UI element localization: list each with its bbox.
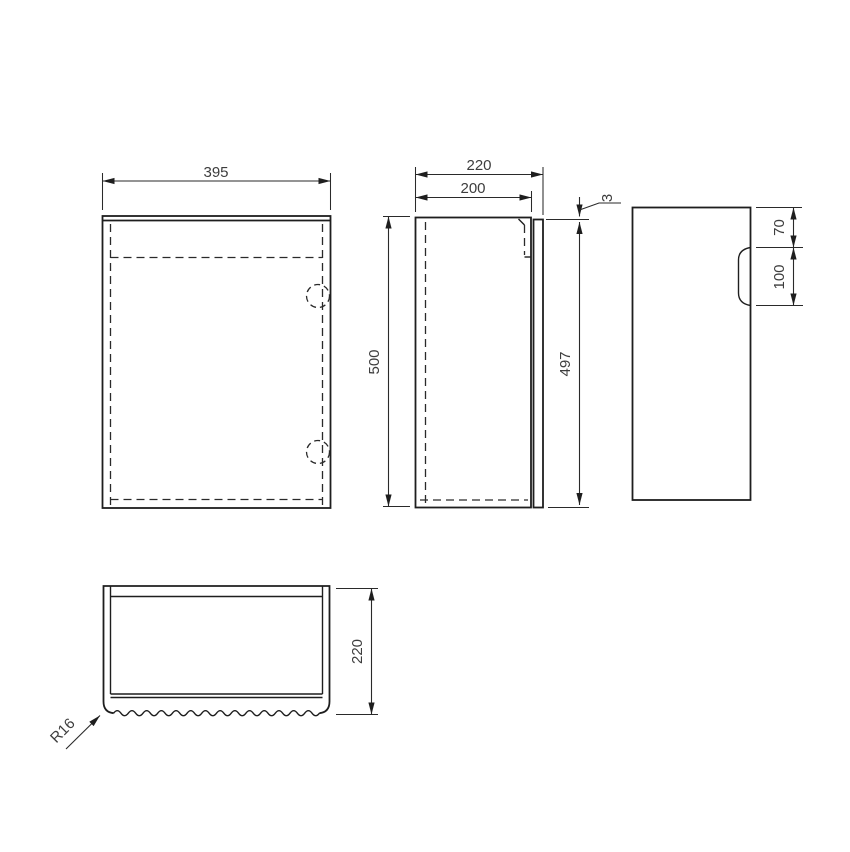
dim-label-500: 500 bbox=[366, 349, 383, 374]
front-hinge-hole-top bbox=[307, 285, 330, 308]
dim-label-497: 497 bbox=[557, 351, 574, 376]
technical-drawing-page: 395 220 200 500 bbox=[0, 0, 850, 852]
dimension-gap-3: 3 bbox=[580, 194, 622, 217]
side-rail-chamfer bbox=[519, 219, 525, 225]
dimension-handle-offset-70: 70 bbox=[756, 208, 803, 248]
profile-handle-recess bbox=[739, 248, 751, 306]
front-hinge-hole-bottom bbox=[307, 441, 330, 464]
dim-label-100: 100 bbox=[771, 264, 788, 289]
dim-label-395: 395 bbox=[203, 164, 228, 181]
profile-outline bbox=[633, 208, 751, 501]
side-door-slab bbox=[534, 220, 544, 508]
cabinet-orthographic-drawing: 395 220 200 500 bbox=[0, 0, 850, 852]
dimension-handle-height-100: 100 bbox=[756, 248, 803, 306]
side-carcass-outline bbox=[416, 218, 532, 508]
dimension-carcass-200: 200 bbox=[416, 180, 532, 212]
front-view: 395 bbox=[103, 164, 331, 508]
side-profile-view: 70 100 bbox=[633, 208, 804, 501]
dim-label-200: 200 bbox=[460, 180, 485, 197]
dimension-width-395: 395 bbox=[103, 164, 331, 210]
dimension-door-height-497: 497 bbox=[546, 220, 589, 508]
dimension-height-500: 500 bbox=[366, 217, 410, 507]
front-cabinet-outline bbox=[103, 216, 331, 508]
dim-label-70: 70 bbox=[771, 219, 788, 236]
dim-label-3: 3 bbox=[599, 194, 616, 202]
side-section-view: 220 200 500 497 3 bbox=[366, 157, 621, 508]
dimension-corner-radius-r16: R16 bbox=[47, 715, 100, 749]
dimension-plan-depth-220: 220 bbox=[336, 589, 378, 715]
dim-label-220-depth: 220 bbox=[466, 157, 491, 174]
plan-view: 220 R16 bbox=[47, 586, 378, 749]
plan-wave-edge bbox=[114, 711, 320, 716]
dim-label-220-plan: 220 bbox=[349, 639, 366, 664]
